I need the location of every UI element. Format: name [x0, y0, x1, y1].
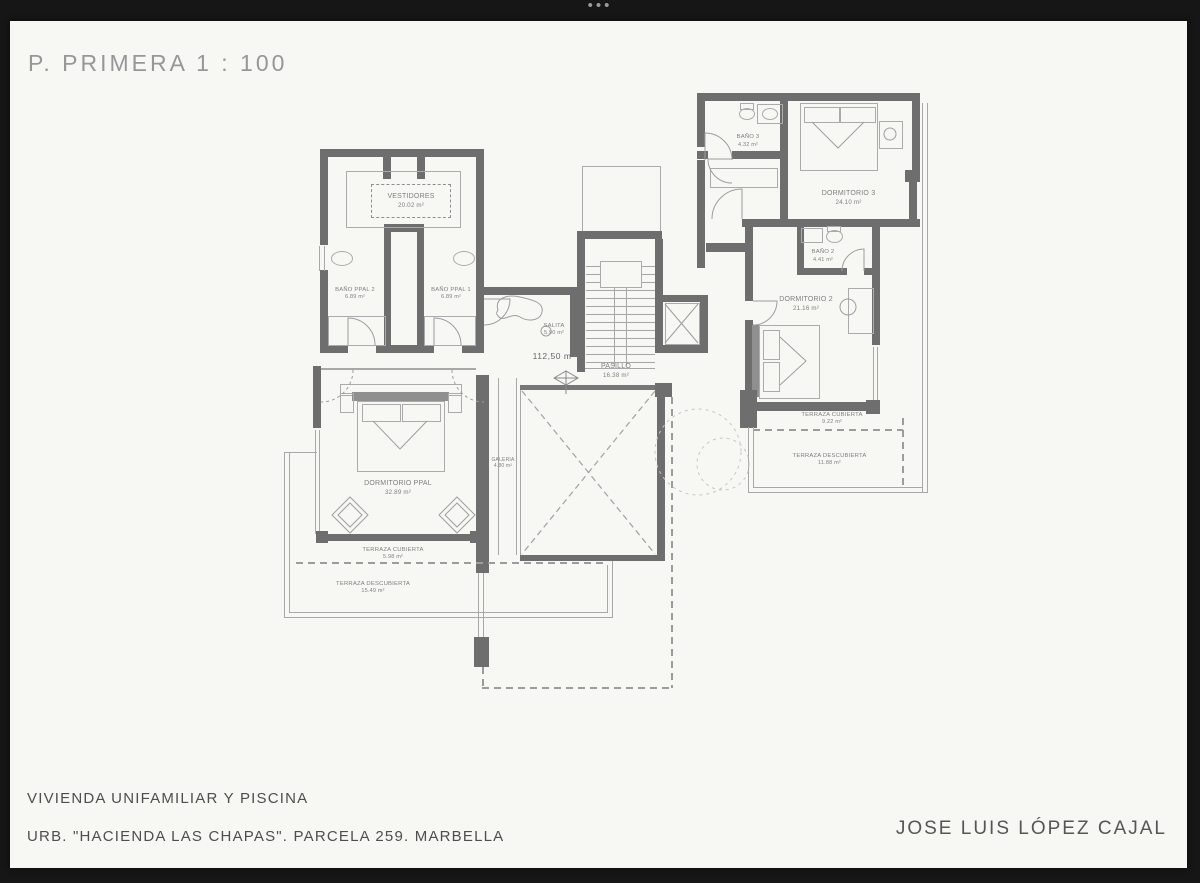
room-label-dormitorio-2: DORMITORIO 221.16 m²	[770, 294, 842, 314]
room-label-terraza-descubierta-left: TERRAZA DESCUBIERTA15.49 m²	[308, 579, 438, 597]
architect-name: JOSE LUIS LÓPEZ CAJAL	[896, 818, 1167, 840]
room-label-dormitorio-ppal: DORMITORIO PPAL32.89 m²	[352, 478, 444, 498]
room-label-bano-2: BAÑO 24.41 m²	[796, 247, 850, 266]
room-label-terraza-descubierta-right: TERRAZA DESCUBIERTA11.88 m²	[772, 451, 887, 469]
room-label-bano-3: BAÑO 34.32 m²	[720, 132, 776, 151]
room-label-vestidores: VESTIDORES20.02 m²	[371, 184, 451, 218]
room-label-bano-ppal-2: BAÑO PPAL 26.89 m²	[322, 284, 388, 304]
room-label-bano-ppal-1: BAÑO PPAL 16.89 m²	[418, 284, 484, 304]
level-marker: 112,50 m	[516, 350, 588, 362]
project-name: VIVIENDA UNIFAMILIAR Y PISCINA	[27, 790, 308, 807]
drawing-sheet	[10, 21, 1187, 868]
plan-title: P. PRIMERA 1 : 100	[28, 50, 287, 77]
viewer-menu-dots[interactable]: •••	[560, 0, 640, 14]
room-label-galeria: GALERIA4.80 m²	[484, 455, 522, 471]
room-label-dormitorio-3: DORMITORIO 324.10 m²	[806, 188, 891, 208]
room-label-pasillo: PASILLO16.38 m²	[590, 360, 642, 382]
room-label-terraza-cubierta-left: TERRAZA CUBIERTA5.98 m²	[338, 545, 448, 563]
room-label-terraza-cubierta-right: TERRAZA CUBIERTA9.22 m²	[782, 410, 882, 428]
room-label-salita: SALITA5.90 m²	[532, 320, 576, 340]
screenshot-frame: ••• P. PRIMERA 1 : 100 VIVIENDA UNIFAMIL…	[0, 0, 1200, 883]
project-address: URB. "HACIENDA LAS CHAPAS". PARCELA 259.…	[27, 828, 504, 845]
